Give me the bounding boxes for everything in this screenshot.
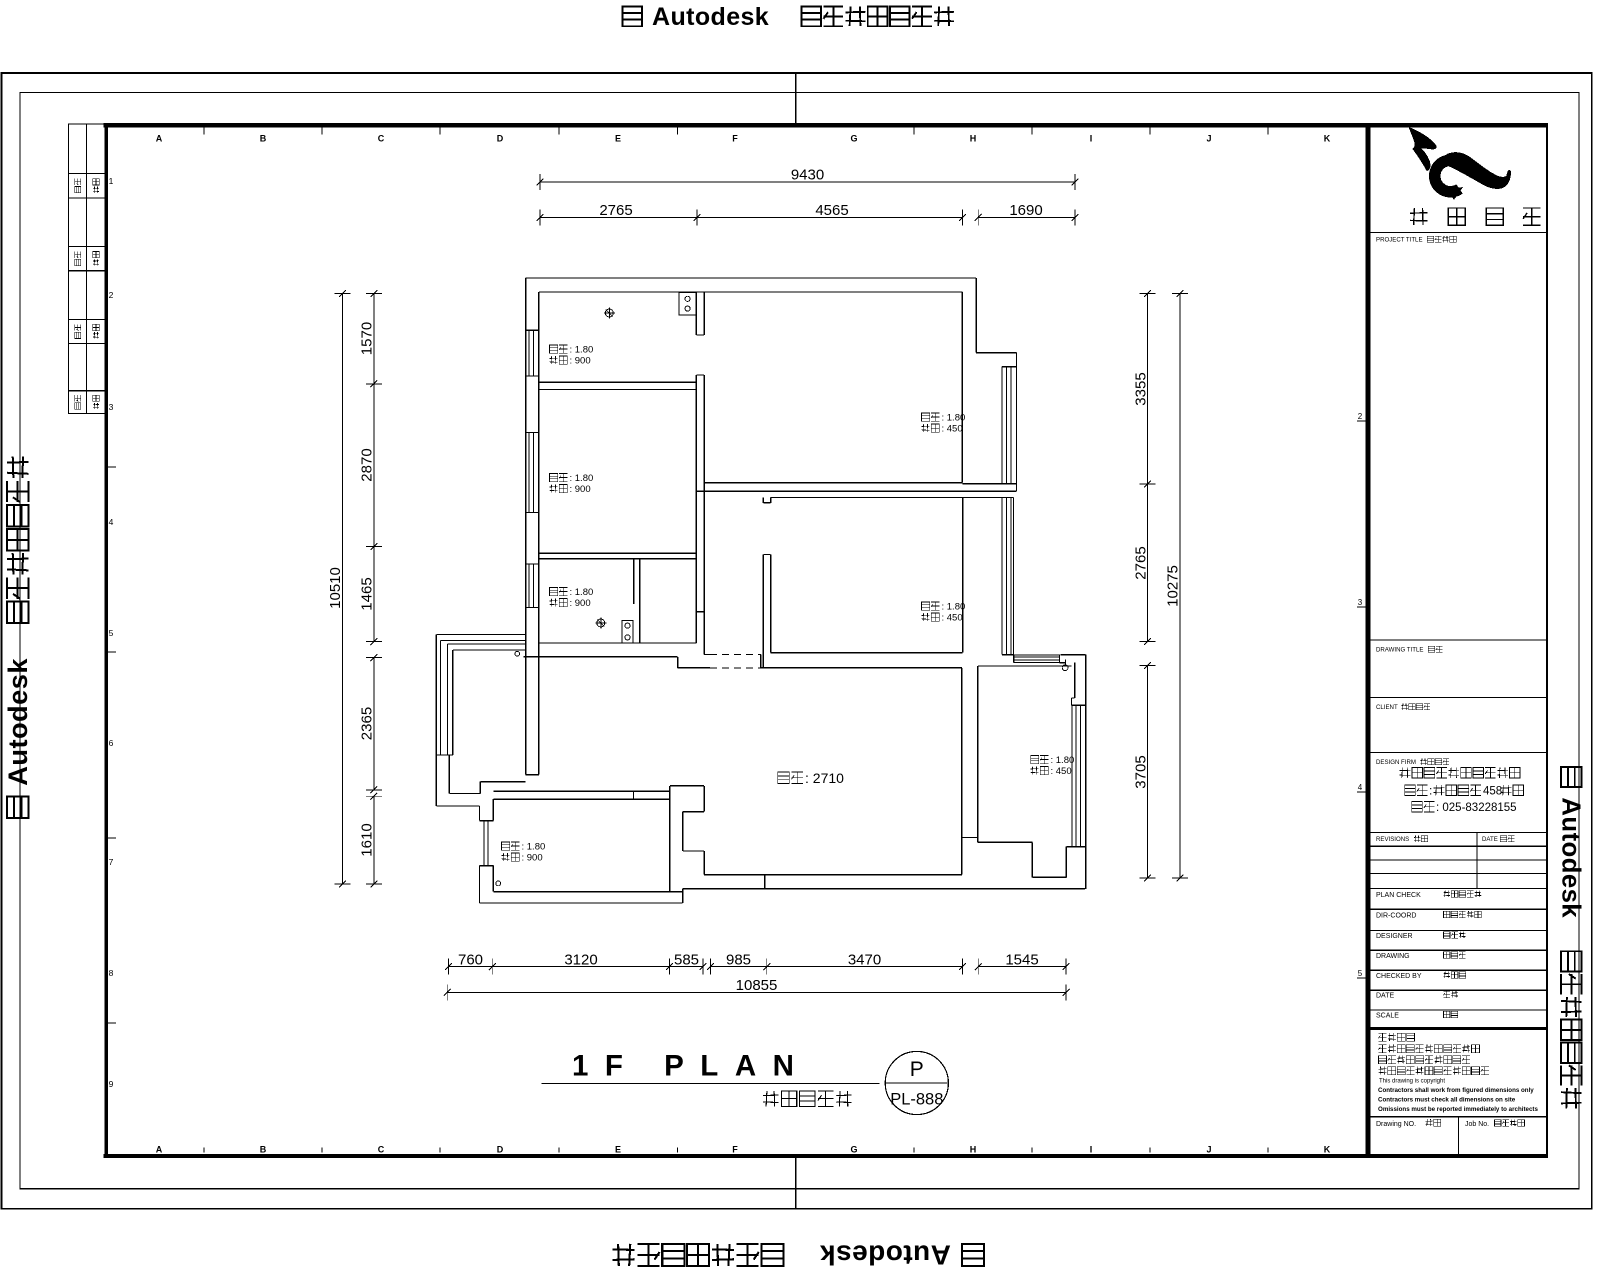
svg-text:1610: 1610 xyxy=(359,823,376,856)
svg-text:5: 5 xyxy=(1358,969,1363,978)
svg-text:Autodesk: Autodesk xyxy=(652,3,769,31)
svg-text:CLIENT: CLIENT xyxy=(1376,704,1398,711)
svg-text:E: E xyxy=(615,134,621,144)
svg-text:: 1.80: : 1.80 xyxy=(570,473,594,484)
svg-text:: 450: : 450 xyxy=(1051,766,1072,777)
svg-text:H: H xyxy=(970,134,977,144)
svg-text:: 900: : 900 xyxy=(570,598,591,609)
svg-text:458: 458 xyxy=(1483,786,1502,798)
svg-text:G: G xyxy=(850,134,857,144)
svg-text:2765: 2765 xyxy=(1133,546,1150,579)
svg-text:2: 2 xyxy=(109,290,114,300)
svg-text:DATE: DATE xyxy=(1482,836,1498,843)
svg-text:DESIGNER: DESIGNER xyxy=(1376,933,1413,940)
svg-text:4565: 4565 xyxy=(815,202,848,219)
svg-text:3120: 3120 xyxy=(564,951,597,968)
svg-text:: 2710: : 2710 xyxy=(805,770,844,786)
svg-text:2365: 2365 xyxy=(359,707,376,740)
svg-text:: 450: : 450 xyxy=(942,424,963,435)
svg-text:K: K xyxy=(1324,134,1331,144)
svg-text:9430: 9430 xyxy=(791,167,824,184)
svg-text:I: I xyxy=(1090,1145,1093,1155)
svg-text:3: 3 xyxy=(1358,598,1363,607)
svg-text:985: 985 xyxy=(726,951,751,968)
svg-text:C: C xyxy=(378,1145,385,1155)
svg-text:Contractors shall work from fi: Contractors shall work from figured dime… xyxy=(1378,1087,1534,1094)
svg-text:3470: 3470 xyxy=(848,951,881,968)
svg-text:DRAWING TITLE: DRAWING TITLE xyxy=(1376,647,1423,654)
svg-text:2870: 2870 xyxy=(359,448,376,481)
svg-text:A: A xyxy=(156,134,163,144)
svg-text:PL-888: PL-888 xyxy=(890,1091,943,1109)
svg-text:: 450: : 450 xyxy=(942,613,963,624)
svg-text:DATE: DATE xyxy=(1376,993,1394,1000)
svg-text:760: 760 xyxy=(458,951,483,968)
svg-text:DESIGN FIRM: DESIGN FIRM xyxy=(1376,759,1416,766)
svg-text:SCALE: SCALE xyxy=(1376,1013,1399,1020)
svg-text:PLAN CHECK: PLAN CHECK xyxy=(1376,892,1421,899)
svg-text:Autodesk: Autodesk xyxy=(1557,797,1585,918)
svg-text::: : xyxy=(1429,784,1432,798)
svg-text:7: 7 xyxy=(109,857,114,867)
svg-text:A: A xyxy=(156,1145,163,1155)
svg-text:1570: 1570 xyxy=(359,322,376,355)
svg-text:1690: 1690 xyxy=(1009,202,1042,219)
svg-text:2765: 2765 xyxy=(599,202,632,219)
svg-text:Contractors must check all dim: Contractors must check all dimensions on… xyxy=(1378,1097,1516,1104)
svg-text:G: G xyxy=(850,1145,857,1155)
svg-text:Autodesk: Autodesk xyxy=(2,658,33,786)
svg-text:1: 1 xyxy=(109,176,114,186)
svg-text:CHECKED BY: CHECKED BY xyxy=(1376,973,1422,980)
svg-text:5: 5 xyxy=(109,628,114,638)
svg-text:585: 585 xyxy=(674,951,699,968)
svg-text:2: 2 xyxy=(1358,412,1363,421)
svg-text:10510: 10510 xyxy=(327,567,344,609)
svg-text:Omissions must be reported imm: Omissions must be reported immediately t… xyxy=(1378,1106,1538,1113)
svg-text:8: 8 xyxy=(109,968,114,978)
svg-text:: 900: : 900 xyxy=(570,356,591,367)
svg-text:C: C xyxy=(378,134,385,144)
svg-text:1F PLAN: 1F PLAN xyxy=(572,1050,810,1083)
svg-text:9: 9 xyxy=(109,1079,114,1089)
svg-text:J: J xyxy=(1206,1145,1211,1155)
svg-text:E: E xyxy=(615,1145,621,1155)
svg-text:: 1.80: : 1.80 xyxy=(570,345,594,356)
svg-text:3705: 3705 xyxy=(1133,755,1150,788)
svg-text:: 1.80: : 1.80 xyxy=(942,413,966,424)
svg-text:1545: 1545 xyxy=(1005,951,1038,968)
svg-text:Job No.: Job No. xyxy=(1465,1121,1489,1128)
svg-text:: 025-83228155: : 025-83228155 xyxy=(1436,802,1517,814)
svg-text:F: F xyxy=(732,134,738,144)
svg-text:DIR-COORD: DIR-COORD xyxy=(1376,913,1416,920)
svg-text:PROJECT TITLE: PROJECT TITLE xyxy=(1376,237,1423,244)
svg-text:: 900: : 900 xyxy=(570,484,591,495)
svg-text:10855: 10855 xyxy=(736,977,778,994)
svg-text:H: H xyxy=(970,1145,977,1155)
svg-text:B: B xyxy=(260,1145,267,1155)
svg-text:DRAWING: DRAWING xyxy=(1376,953,1410,960)
svg-text:Autodesk: Autodesk xyxy=(820,1239,951,1270)
svg-text:J: J xyxy=(1206,134,1211,144)
svg-text:4: 4 xyxy=(109,517,114,527)
svg-text:Drawing NO.: Drawing NO. xyxy=(1376,1121,1416,1128)
svg-text:: 1.80: : 1.80 xyxy=(942,602,966,613)
svg-text:1465: 1465 xyxy=(359,577,376,610)
svg-text:3: 3 xyxy=(109,402,114,412)
svg-text:: 1.80: : 1.80 xyxy=(522,842,546,853)
svg-text:B: B xyxy=(260,134,267,144)
svg-text:10275: 10275 xyxy=(1165,565,1182,607)
svg-text:I: I xyxy=(1090,134,1093,144)
svg-text:: 1.80: : 1.80 xyxy=(570,587,594,598)
svg-text:REVISIONS: REVISIONS xyxy=(1376,836,1409,843)
svg-text:F: F xyxy=(732,1145,738,1155)
svg-text:: 900: : 900 xyxy=(522,853,543,864)
svg-text:: 1.80: : 1.80 xyxy=(1051,755,1075,766)
svg-text:6: 6 xyxy=(109,738,114,748)
svg-text:4: 4 xyxy=(1358,783,1363,792)
svg-text:K: K xyxy=(1324,1145,1331,1155)
svg-text:D: D xyxy=(497,134,504,144)
svg-text:3355: 3355 xyxy=(1133,372,1150,405)
svg-text:D: D xyxy=(497,1145,504,1155)
svg-text:This drawing is copyright: This drawing is copyright xyxy=(1379,1079,1445,1085)
svg-text:P: P xyxy=(910,1058,924,1081)
